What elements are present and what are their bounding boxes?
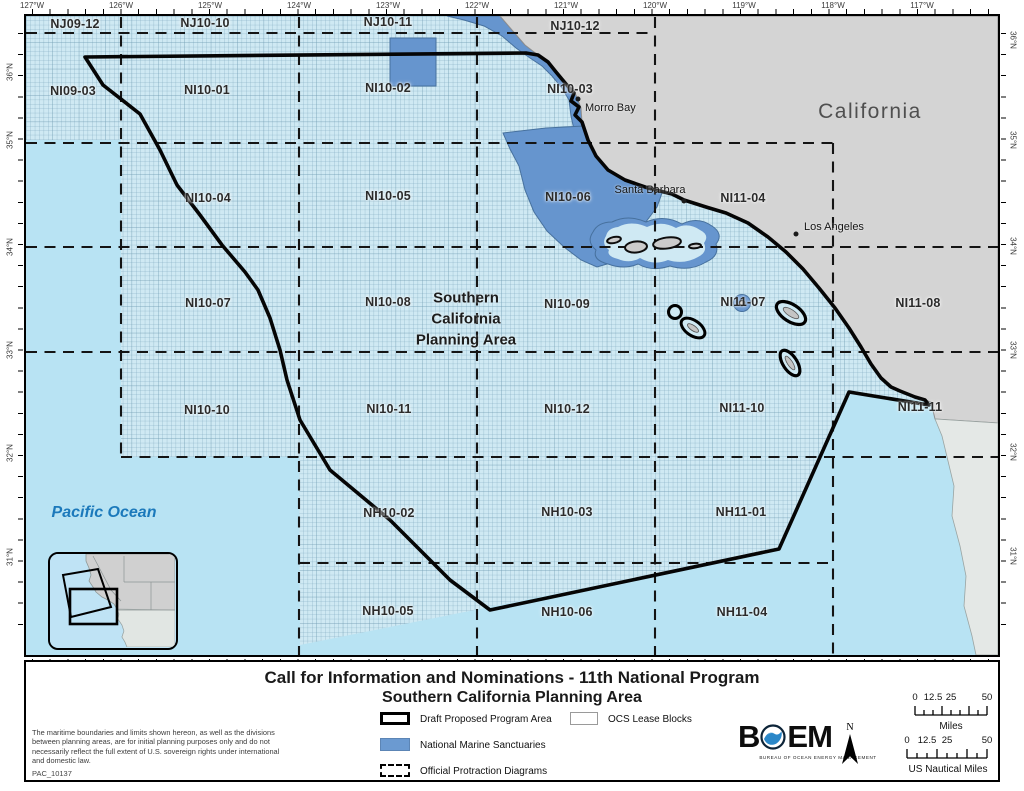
north-arrow-icon: [842, 734, 858, 764]
protraction-label: NI10-11: [366, 402, 411, 416]
latitude-label: 33°N: [6, 341, 15, 359]
longitude-label: 121°W: [554, 1, 578, 10]
nautical-miles-unit-label: US Nautical Miles: [896, 764, 1000, 775]
pacific-ocean-label: Pacific Ocean: [52, 504, 157, 522]
protraction-diagrams-swatch: [380, 764, 410, 777]
protraction-label: NI10-02: [365, 81, 411, 95]
scale-tick-label: 50: [982, 692, 993, 703]
boem-map-sheet: 127°W 126°W 125°W 124°W 123°W 122°W 121°…: [0, 0, 1024, 791]
map-footer-panel: Call for Information and Nominations - 1…: [24, 660, 1000, 782]
protraction-label: NI10-04: [185, 191, 231, 205]
left-tick-marks: [18, 33, 23, 639]
city-label-santa-barbara: Santa Barbara: [615, 184, 686, 196]
protraction-label: NJ09-12: [50, 17, 99, 31]
scale-tick-label: 50: [982, 735, 993, 746]
north-arrow: N: [840, 722, 860, 764]
latitude-label: 34°N: [6, 238, 15, 256]
disclaimer-text: The maritime boundaries and limits shown…: [32, 728, 284, 766]
latitude-label: 36°N: [6, 63, 15, 81]
city-dot-santa-barbara: [682, 199, 687, 204]
city-label-los-angeles: Los Angeles: [804, 221, 864, 233]
scale-tick-label: 25: [946, 692, 957, 703]
north-label: N: [840, 722, 860, 733]
longitude-label: 125°W: [198, 1, 222, 10]
protraction-label: NI10-12: [544, 402, 590, 416]
longitude-label: 119°W: [732, 1, 756, 10]
protraction-label: NJ10-10: [180, 16, 229, 30]
protraction-label: NI10-01: [184, 83, 230, 97]
scale-tick-label: 12.5: [918, 735, 937, 746]
map-title-line2: Southern California Planning Area: [26, 689, 998, 707]
protraction-label: NI09-03: [50, 84, 96, 98]
longitude-label: 120°W: [643, 1, 667, 10]
protraction-label: NI10-03: [547, 82, 593, 96]
scale-tick-label: 0: [912, 692, 917, 703]
marine-sanctuaries-swatch: [380, 738, 410, 751]
protraction-label: NI11-08: [895, 296, 940, 310]
draft-program-area-swatch: [380, 712, 410, 725]
latitude-label: 35°N: [1009, 131, 1018, 149]
legend-label: National Marine Sanctuaries: [420, 740, 546, 751]
protraction-label: NI10-08: [365, 295, 411, 309]
protraction-label: NI11-07: [720, 295, 765, 309]
protraction-label: NI11-11: [898, 400, 943, 414]
boem-logo: B EM BUREAU OF OCEAN ENERGY MANAGEMENT: [738, 722, 898, 768]
protraction-label: NH10-06: [541, 605, 592, 619]
latitude-label: 32°N: [1009, 443, 1018, 461]
protraction-label: NI10-10: [184, 403, 230, 417]
protraction-label: NH10-03: [541, 505, 592, 519]
map-canvas: NJ09-12 NJ10-10 NJ10-11 NJ10-12 NI09-03 …: [24, 14, 1000, 657]
protraction-label: NH10-02: [363, 506, 414, 520]
miles-unit-label: Miles: [914, 721, 988, 732]
protraction-label: NH10-05: [362, 604, 413, 618]
longitude-label: 127°W: [20, 1, 44, 10]
longitude-label: 126°W: [109, 1, 133, 10]
longitude-label: 124°W: [287, 1, 311, 10]
state-label-california: California: [818, 100, 922, 124]
boem-letters-em: EM: [787, 722, 832, 752]
legend-label: Draft Proposed Program Area: [420, 714, 552, 725]
city-dot-morro-bay: [576, 97, 581, 102]
ocs-lease-blocks-swatch: [570, 712, 598, 725]
legend-label: Official Protraction Diagrams: [420, 766, 547, 777]
boem-tagline: BUREAU OF OCEAN ENERGY MANAGEMENT: [730, 755, 906, 760]
longitude-label: 122°W: [465, 1, 489, 10]
boem-wave-icon: [760, 724, 786, 750]
map-title-line1: Call for Information and Nominations - 1…: [26, 668, 998, 688]
latitude-label: 33°N: [1009, 341, 1018, 359]
latitude-label: 31°N: [6, 548, 15, 566]
protraction-label: NI10-06: [545, 190, 591, 204]
planning-area-label: Southern California Planning Area: [416, 288, 516, 351]
protraction-label: NH11-01: [716, 505, 767, 519]
nautical-miles-scale-bar: [906, 746, 990, 759]
city-dot-los-angeles: [794, 232, 799, 237]
protraction-label: NI10-09: [544, 297, 590, 311]
protraction-label: NJ10-11: [364, 15, 413, 29]
protraction-label: NI10-07: [185, 296, 231, 310]
protraction-label: NI11-04: [720, 191, 765, 205]
boem-letter-b: B: [738, 722, 759, 752]
right-tick-marks: [1001, 33, 1006, 639]
protraction-label: NI10-05: [365, 189, 411, 203]
latitude-label: 34°N: [1009, 237, 1018, 255]
legend-label: OCS Lease Blocks: [608, 714, 692, 725]
protraction-label: NJ10-12: [550, 19, 599, 33]
scale-tick-label: 25: [942, 735, 953, 746]
protraction-label: NI11-10: [719, 401, 764, 415]
locator-inset-map: [48, 552, 178, 650]
longitude-label: 117°W: [910, 1, 934, 10]
latitude-label: 32°N: [6, 444, 15, 462]
scale-bars: 0 12.5 25 50 Miles 0 12.5 25 50 US Nauti…: [884, 692, 1000, 775]
scale-tick-label: 12.5: [924, 692, 943, 703]
latitude-label: 35°N: [6, 131, 15, 149]
latitude-label: 31°N: [1009, 547, 1018, 565]
city-label-morro-bay: Morro Bay: [585, 102, 636, 114]
miles-scale-bar: [914, 703, 988, 716]
latitude-label: 36°N: [1009, 31, 1018, 49]
longitude-label: 118°W: [821, 1, 845, 10]
scale-tick-label: 0: [904, 735, 909, 746]
protraction-label: NH11-04: [717, 605, 768, 619]
longitude-label: 123°W: [376, 1, 400, 10]
map-id: PAC_10137: [32, 769, 72, 778]
